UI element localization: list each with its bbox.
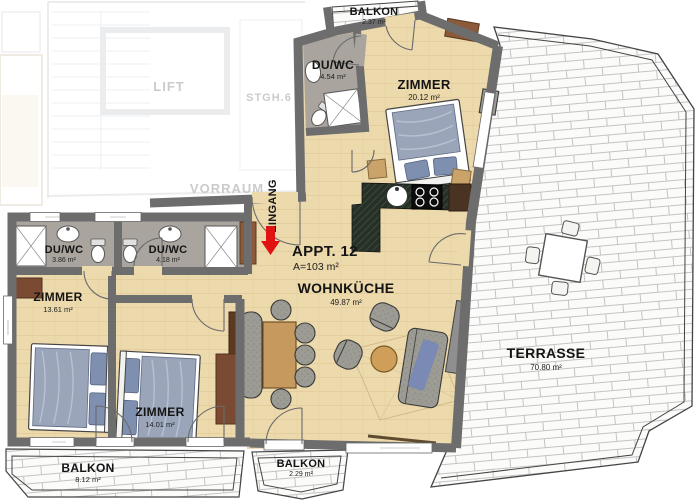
neighbor-room <box>2 12 40 52</box>
room-name: ZIMMER <box>33 290 82 304</box>
bed-left <box>29 344 114 433</box>
lift-label: LIFT <box>153 79 184 94</box>
room-name: ZIMMER <box>397 77 450 92</box>
room-area: 20.12 m² <box>408 93 440 102</box>
entrance-label: EINGANG <box>267 179 279 232</box>
door-gap <box>457 230 471 267</box>
room-name: DU/WC <box>312 58 354 72</box>
room-area: 13.61 m² <box>43 305 73 314</box>
room-name: BALKON <box>350 6 399 18</box>
dining-table <box>263 322 296 388</box>
terrace-table <box>539 234 588 283</box>
floor-plan: LIFT STGH.6 VORRAUM <box>0 0 700 500</box>
bed-bottom <box>116 351 201 445</box>
terrace-chair <box>525 247 540 264</box>
room-name: DU/WC <box>45 244 84 256</box>
shower <box>324 89 362 127</box>
apartment-area: A=103 m² <box>293 261 339 273</box>
balcony-door[interactable] <box>264 440 304 450</box>
door-gap <box>134 266 162 276</box>
kitchen-wall-stub <box>449 184 471 211</box>
room-area: 70.80 m² <box>530 363 562 372</box>
lift-shaft <box>103 30 227 112</box>
wardrobe <box>216 354 238 424</box>
room-name: WOHNKÜCHE <box>298 280 395 296</box>
neighbor-floor <box>2 95 38 187</box>
room-name: DU/WC <box>149 244 188 256</box>
room-area: 4.54 m² <box>320 72 346 81</box>
chair <box>295 367 315 387</box>
door-gap <box>192 294 224 304</box>
faucet <box>395 187 399 191</box>
room-name: BALKON <box>277 458 326 470</box>
chair <box>295 345 315 365</box>
room-name: ZIMMER <box>135 405 184 419</box>
room-area: 3.86 m² <box>52 257 76 264</box>
room-area: 4.18 m² <box>156 257 180 264</box>
room-area: 49.87 m² <box>330 298 362 307</box>
stove <box>412 185 442 209</box>
balcony-bottom-left <box>6 449 244 497</box>
balcony-door[interactable] <box>186 438 224 447</box>
toilet <box>91 239 105 263</box>
stairwell-label: STGH.6 <box>246 92 292 104</box>
chair <box>271 389 291 409</box>
chair <box>295 323 315 343</box>
apartment-label: APPT. 12 <box>292 243 358 260</box>
room-area: 2.29 m² <box>289 471 313 478</box>
room-area: 2.37 m² <box>362 19 386 26</box>
floor-plan-page: LIFT STGH.6 VORRAUM <box>0 0 700 500</box>
room-name: BALKON <box>61 461 114 475</box>
chair <box>271 300 291 320</box>
room-name: TERRASSE <box>507 345 586 361</box>
terrace-chair <box>551 281 568 296</box>
room-area: 14.01 m² <box>145 420 175 429</box>
balcony-door[interactable] <box>96 438 134 447</box>
coffee-table <box>371 346 397 372</box>
room-area: 8.12 m² <box>75 475 101 484</box>
door-gap <box>82 266 112 276</box>
